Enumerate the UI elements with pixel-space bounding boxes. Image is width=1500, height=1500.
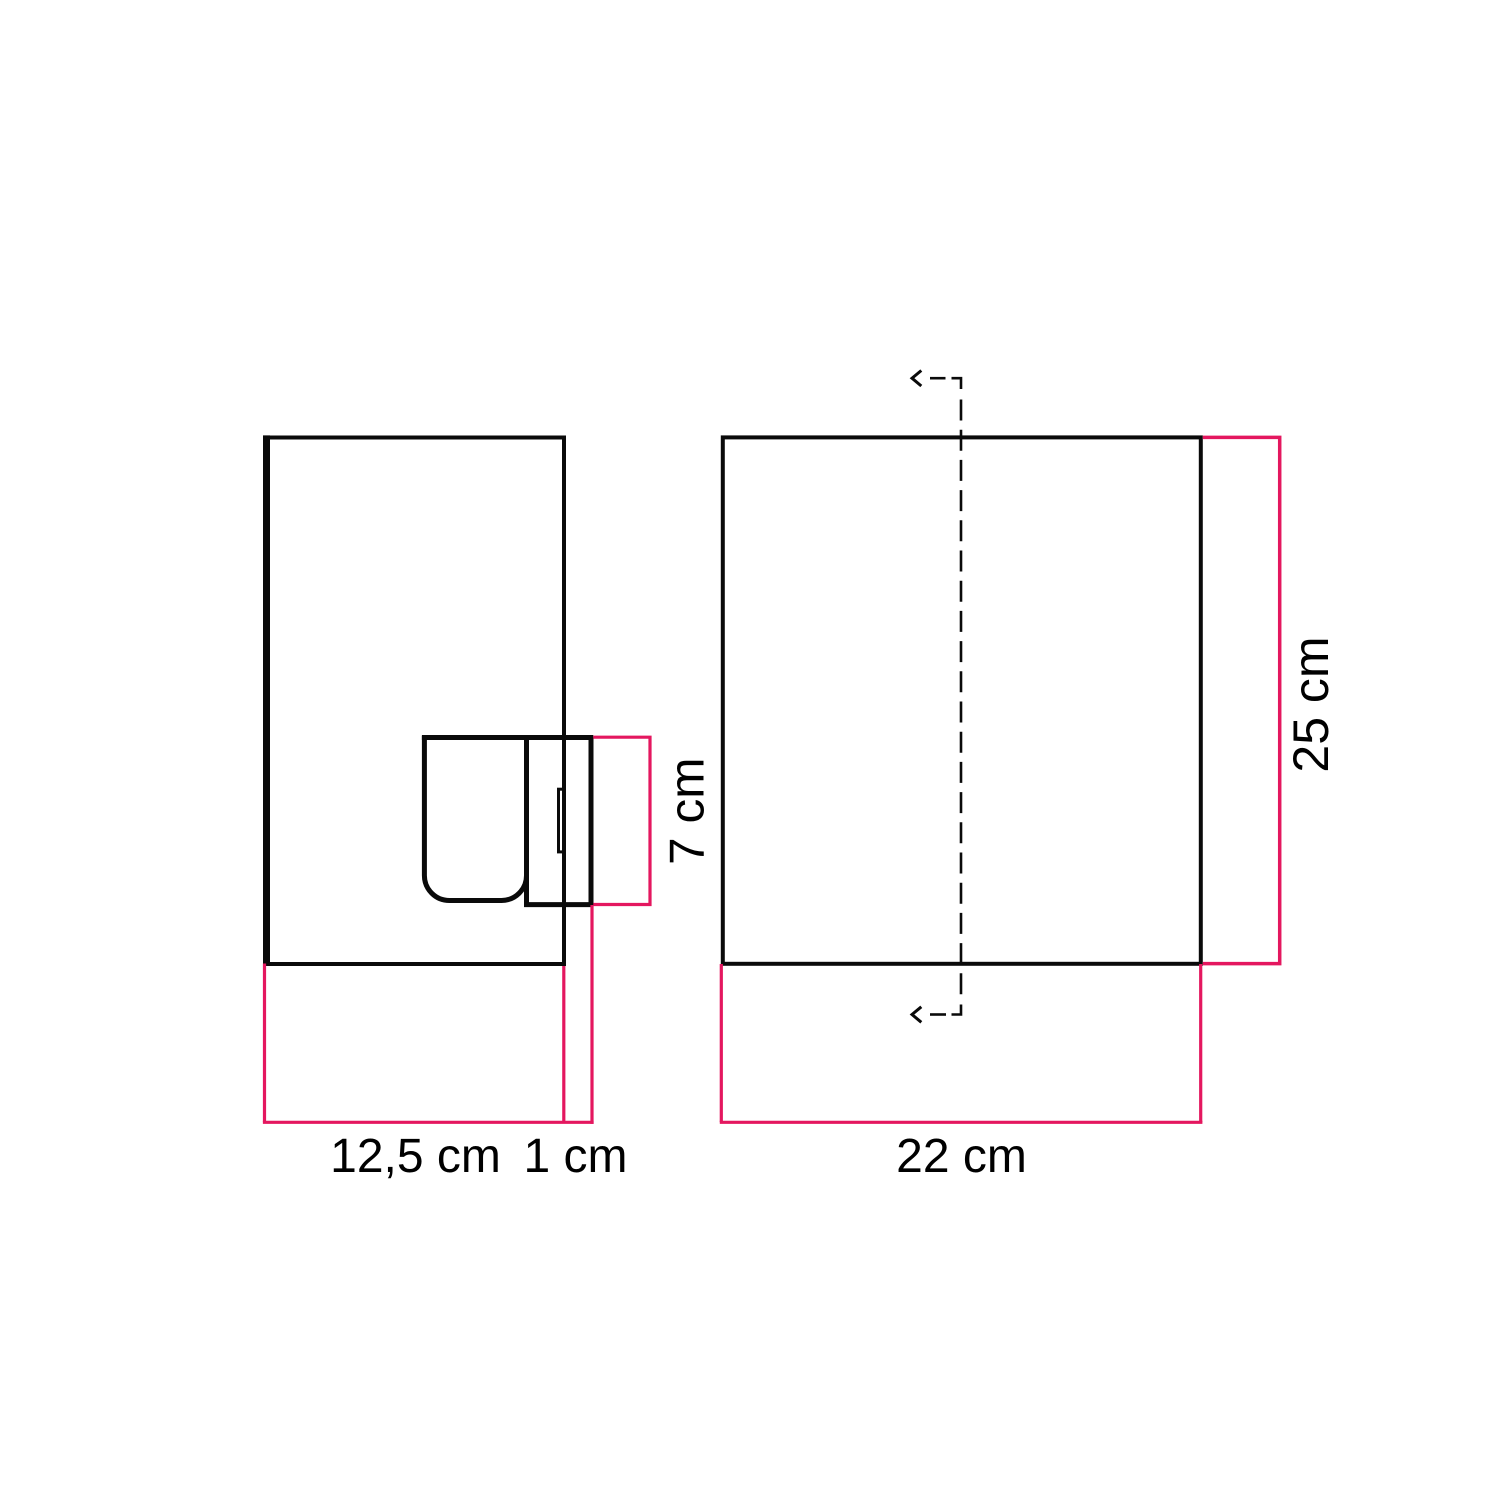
svg-text:22 cm: 22 cm	[896, 1130, 1027, 1183]
svg-text:25 cm: 25 cm	[1283, 636, 1339, 772]
svg-text:7 cm: 7 cm	[660, 758, 715, 865]
svg-text:12,5 cm: 12,5 cm	[330, 1130, 501, 1183]
svg-text:1 cm: 1 cm	[523, 1130, 627, 1183]
